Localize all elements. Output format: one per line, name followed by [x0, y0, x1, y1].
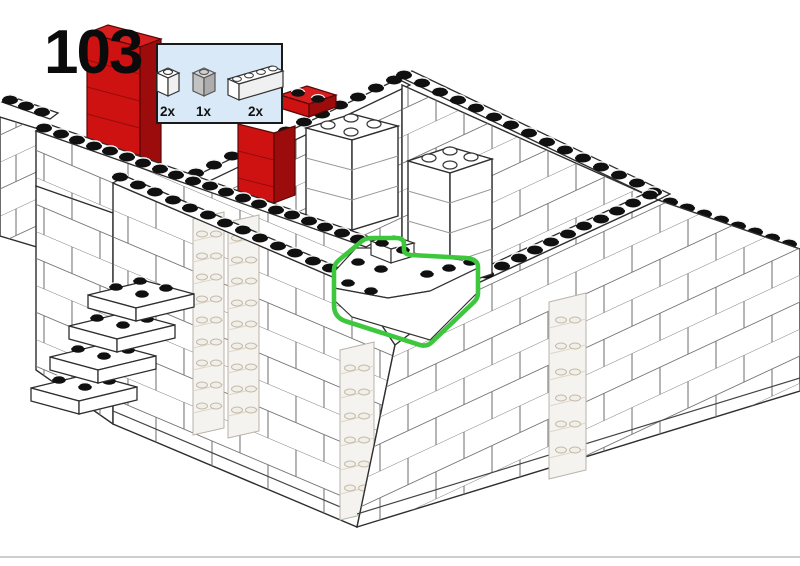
- red-pillar-center: [238, 124, 295, 203]
- parts-callout-item: 2x: [155, 65, 181, 119]
- brick-1x1-white-icon: [155, 65, 181, 103]
- parts-callout-item: 1x: [191, 65, 217, 119]
- white-pillar-back: [306, 114, 398, 230]
- part-quantity: 2x: [160, 105, 175, 119]
- brick-1x1-light-gray-icon: [191, 65, 217, 103]
- page-divider: [0, 556, 800, 558]
- part-quantity: 1x: [196, 105, 211, 119]
- trans-window-column: [193, 212, 224, 435]
- part-quantity: 2x: [248, 105, 263, 119]
- brick-1x4-white-icon: [227, 63, 285, 103]
- lego-instruction-page: 103 2x 1x 2x: [0, 0, 800, 566]
- trans-window-column: [228, 215, 259, 438]
- trans-window-column: [549, 293, 586, 479]
- parts-callout-box: 2x 1x 2x: [156, 43, 283, 124]
- parts-callout-item: 2x: [227, 63, 285, 119]
- step-number: 103: [44, 22, 141, 84]
